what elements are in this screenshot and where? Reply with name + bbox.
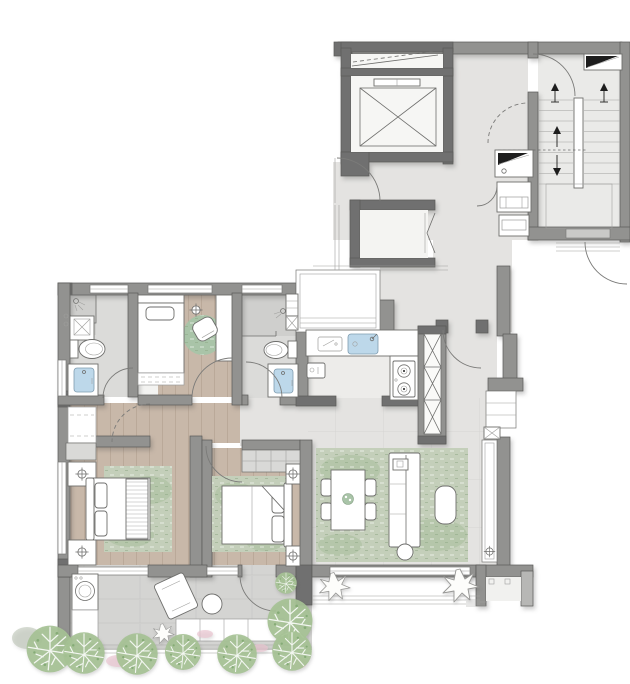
- single-bed: [138, 295, 184, 385]
- stair-window: [566, 229, 610, 238]
- handrail: [574, 98, 583, 188]
- tree-icon: [272, 631, 312, 671]
- duct-shaft-box: [495, 150, 533, 177]
- dining-chair: [365, 479, 376, 496]
- duct-shaft-cap: [418, 436, 446, 444]
- balcony-table: [202, 594, 222, 614]
- tree-icon: [63, 632, 104, 673]
- study-bottom-wall: [138, 395, 192, 405]
- vanity-sink: [268, 364, 298, 397]
- ac-platform-wall-light: [521, 571, 533, 606]
- elevator: [351, 51, 443, 152]
- duct-shaft-box: [499, 215, 529, 236]
- stair-wall-stub: [528, 42, 538, 58]
- closet-interior: [360, 210, 428, 258]
- cutting-board: [318, 337, 342, 351]
- kitchen-wall-stub: [296, 396, 336, 406]
- unit-right-wall-cap: [488, 378, 523, 391]
- side-table: [435, 486, 456, 524]
- window: [58, 360, 66, 396]
- window: [148, 285, 212, 293]
- duct-shaft-cap: [418, 326, 446, 334]
- window-wall: [482, 440, 497, 562]
- cooktop: [393, 361, 415, 397]
- window: [90, 285, 128, 293]
- bedroom2-left-wall: [202, 440, 212, 577]
- damper-box: [584, 54, 622, 70]
- window: [207, 567, 238, 575]
- toilet: [264, 341, 297, 359]
- pouf: [397, 544, 413, 560]
- closet-wall: [350, 200, 435, 210]
- service-closet: [360, 210, 435, 258]
- window-sill-lines: [556, 243, 620, 251]
- door-arc-exterior: [585, 242, 627, 284]
- double-bed: [222, 483, 292, 547]
- elevator-frame: [443, 48, 453, 164]
- x-box: [484, 427, 500, 439]
- tree-icon: [165, 634, 201, 670]
- lobby-floor: [433, 240, 512, 268]
- floor-plan-page: [0, 0, 630, 684]
- window: [242, 285, 282, 293]
- bathroom1-bottom-wall: [58, 395, 104, 405]
- ac-platform: [486, 577, 521, 601]
- lobby-floor: [453, 50, 528, 162]
- dining-chair: [321, 503, 332, 520]
- dining-chair: [321, 479, 332, 496]
- master-top-wall: [94, 436, 150, 447]
- elevator-frame: [341, 48, 351, 164]
- tree-icon: [217, 634, 257, 674]
- bedroom2-right-wall: [300, 440, 312, 567]
- washbasin: [286, 316, 298, 330]
- floor-plan-canvas: [0, 0, 630, 684]
- window-niche: [486, 391, 516, 428]
- kitchen-sink: [348, 334, 378, 354]
- core-right-wall: [620, 42, 630, 242]
- duct-shaft-hatch: [424, 334, 441, 434]
- tree-icon: [275, 572, 297, 594]
- desk: [216, 295, 232, 361]
- balcony-pillar: [296, 565, 312, 605]
- unit-right-wall: [497, 437, 510, 567]
- duct-shaft-box: [497, 182, 531, 212]
- wardrobe: [68, 407, 96, 443]
- sofa: [389, 453, 420, 547]
- unit-right-wall: [497, 266, 510, 336]
- window: [58, 462, 66, 554]
- wall-column: [341, 152, 369, 176]
- tree-icon: [116, 633, 157, 674]
- window: [330, 567, 470, 575]
- elevator-frame: [341, 42, 453, 52]
- closet-wall: [350, 200, 360, 267]
- unit-right-wall-step: [503, 334, 517, 380]
- toilet: [70, 340, 105, 359]
- dining-chair: [365, 503, 376, 520]
- vanity-sink: [68, 364, 98, 396]
- study-right-wall: [232, 293, 242, 405]
- bay-window: [296, 270, 380, 332]
- table-centerpiece: [343, 494, 354, 505]
- closet-wall: [350, 258, 435, 267]
- entry-door-jamb: [476, 320, 488, 333]
- elevator-frame: [341, 68, 453, 76]
- double-bed: [86, 478, 150, 540]
- bathroom1-right-wall: [128, 293, 138, 397]
- wall-shelf: [286, 294, 298, 316]
- bedroom2-top-wall: [242, 440, 300, 450]
- small-appliance: [307, 363, 325, 378]
- master-right-wall: [190, 436, 202, 577]
- bathroom2-door-jamb: [242, 395, 248, 405]
- ac-pad: [486, 577, 521, 601]
- dresser: [66, 443, 96, 460]
- flower-patch: [197, 630, 213, 638]
